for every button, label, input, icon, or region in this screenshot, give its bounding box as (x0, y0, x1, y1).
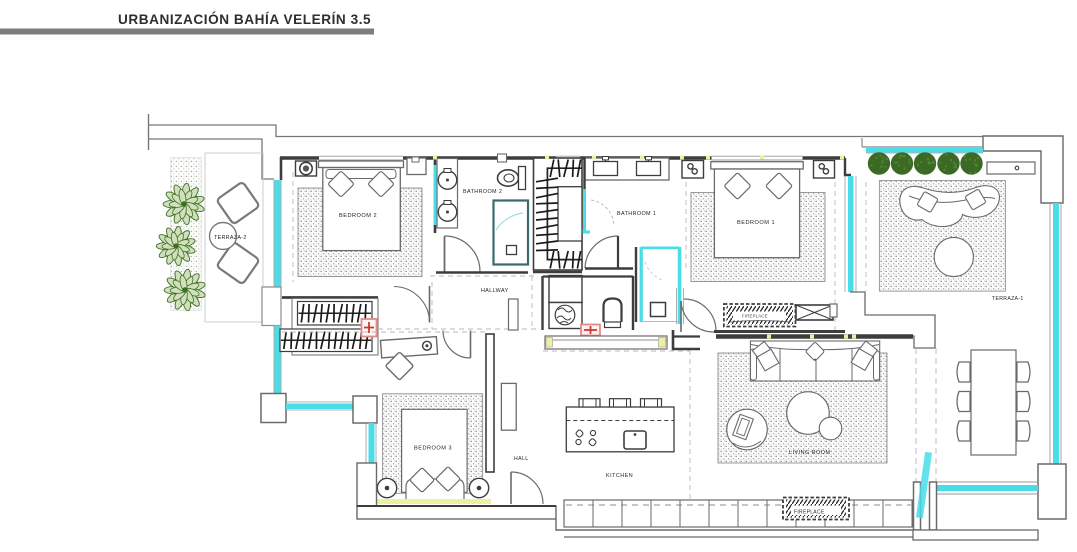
svg-text:TERRAZA-2: TERRAZA-2 (214, 235, 247, 241)
svg-text:BATHROOM 1: BATHROOM 1 (617, 211, 656, 217)
svg-text:TERRAZA-1: TERRAZA-1 (992, 296, 1024, 302)
svg-text:BEDROOM 3: BEDROOM 3 (414, 446, 452, 452)
svg-text:BEDROOM 2: BEDROOM 2 (339, 213, 377, 219)
svg-text:BEDROOM 1: BEDROOM 1 (737, 220, 775, 226)
svg-text:URBANIZACIÓN BAHÍA VELERÍN 3.5: URBANIZACIÓN BAHÍA VELERÍN 3.5 (118, 12, 371, 27)
svg-text:LIVING ROOM: LIVING ROOM (789, 450, 830, 456)
svg-text:FIREPLACE: FIREPLACE (794, 510, 825, 516)
svg-text:HALLWAY: HALLWAY (481, 288, 509, 294)
svg-text:HALL: HALL (514, 456, 529, 462)
svg-text:BATHROOM 2: BATHROOM 2 (463, 189, 502, 195)
svg-text:KITCHEN: KITCHEN (606, 473, 633, 479)
svg-text:FIREPLACE: FIREPLACE (742, 314, 768, 319)
